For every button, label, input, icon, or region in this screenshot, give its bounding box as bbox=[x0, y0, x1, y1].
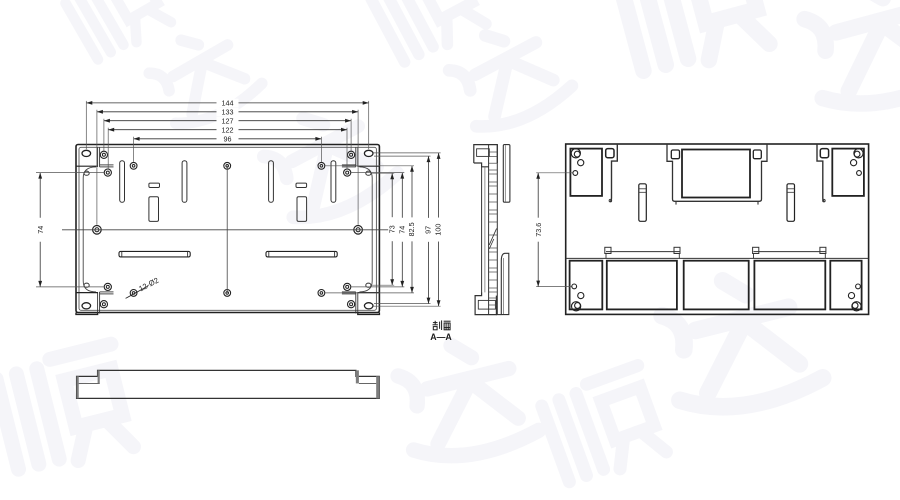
svg-text:133: 133 bbox=[222, 107, 234, 116]
svg-text:97: 97 bbox=[424, 226, 433, 234]
svg-text:144: 144 bbox=[222, 99, 234, 108]
svg-text:82.5: 82.5 bbox=[407, 222, 416, 236]
svg-text:100: 100 bbox=[434, 224, 443, 236]
svg-text:74: 74 bbox=[397, 226, 406, 234]
svg-text:74: 74 bbox=[36, 226, 45, 234]
svg-text:122: 122 bbox=[222, 125, 234, 134]
svg-text:73: 73 bbox=[387, 225, 396, 233]
svg-text:127: 127 bbox=[222, 116, 234, 125]
svg-text:A—A: A—A bbox=[430, 332, 452, 342]
svg-text:73.6: 73.6 bbox=[534, 223, 543, 237]
svg-text:96: 96 bbox=[224, 134, 232, 143]
